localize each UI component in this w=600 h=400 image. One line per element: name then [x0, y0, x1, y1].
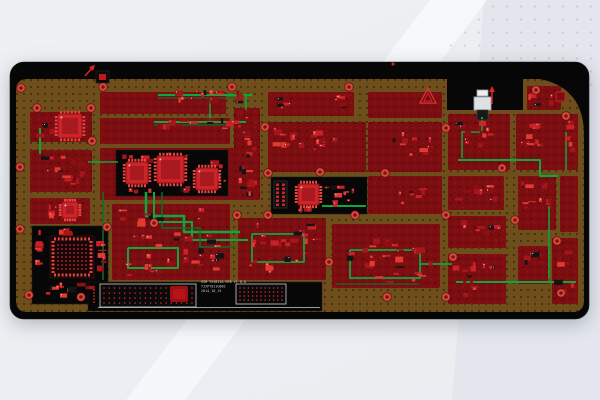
- fiducial-square: [556, 92, 565, 101]
- silkscreen-line-1: GSM TX1811A RFB V1 0.0: [201, 280, 246, 284]
- qfn-ic: [55, 111, 85, 141]
- silkscreen-line-2: TJ2PT011U00E: [201, 285, 226, 289]
- qfn-ic: [295, 181, 322, 208]
- pin-connector: [274, 181, 287, 208]
- black-edge-connector: [96, 71, 109, 83]
- qfn-ic: [59, 199, 81, 221]
- pcb-layout: GSM TX1811A RFB V1 0.0 TJ2PT011U00E 2014…: [0, 0, 600, 400]
- qfn-ic: [193, 165, 221, 193]
- pcb-render-layer: [10, 62, 589, 319]
- fiducial-dot: [391, 62, 394, 65]
- qfn-ic: [123, 159, 151, 187]
- qfn-ic: [154, 153, 187, 186]
- silkscreen-line-3: 2014_10_15: [201, 289, 221, 293]
- desktop-background: GSM TX1811A RFB V1 0.0 TJ2PT011U00E 2014…: [0, 0, 600, 400]
- bga-chip: [50, 236, 94, 278]
